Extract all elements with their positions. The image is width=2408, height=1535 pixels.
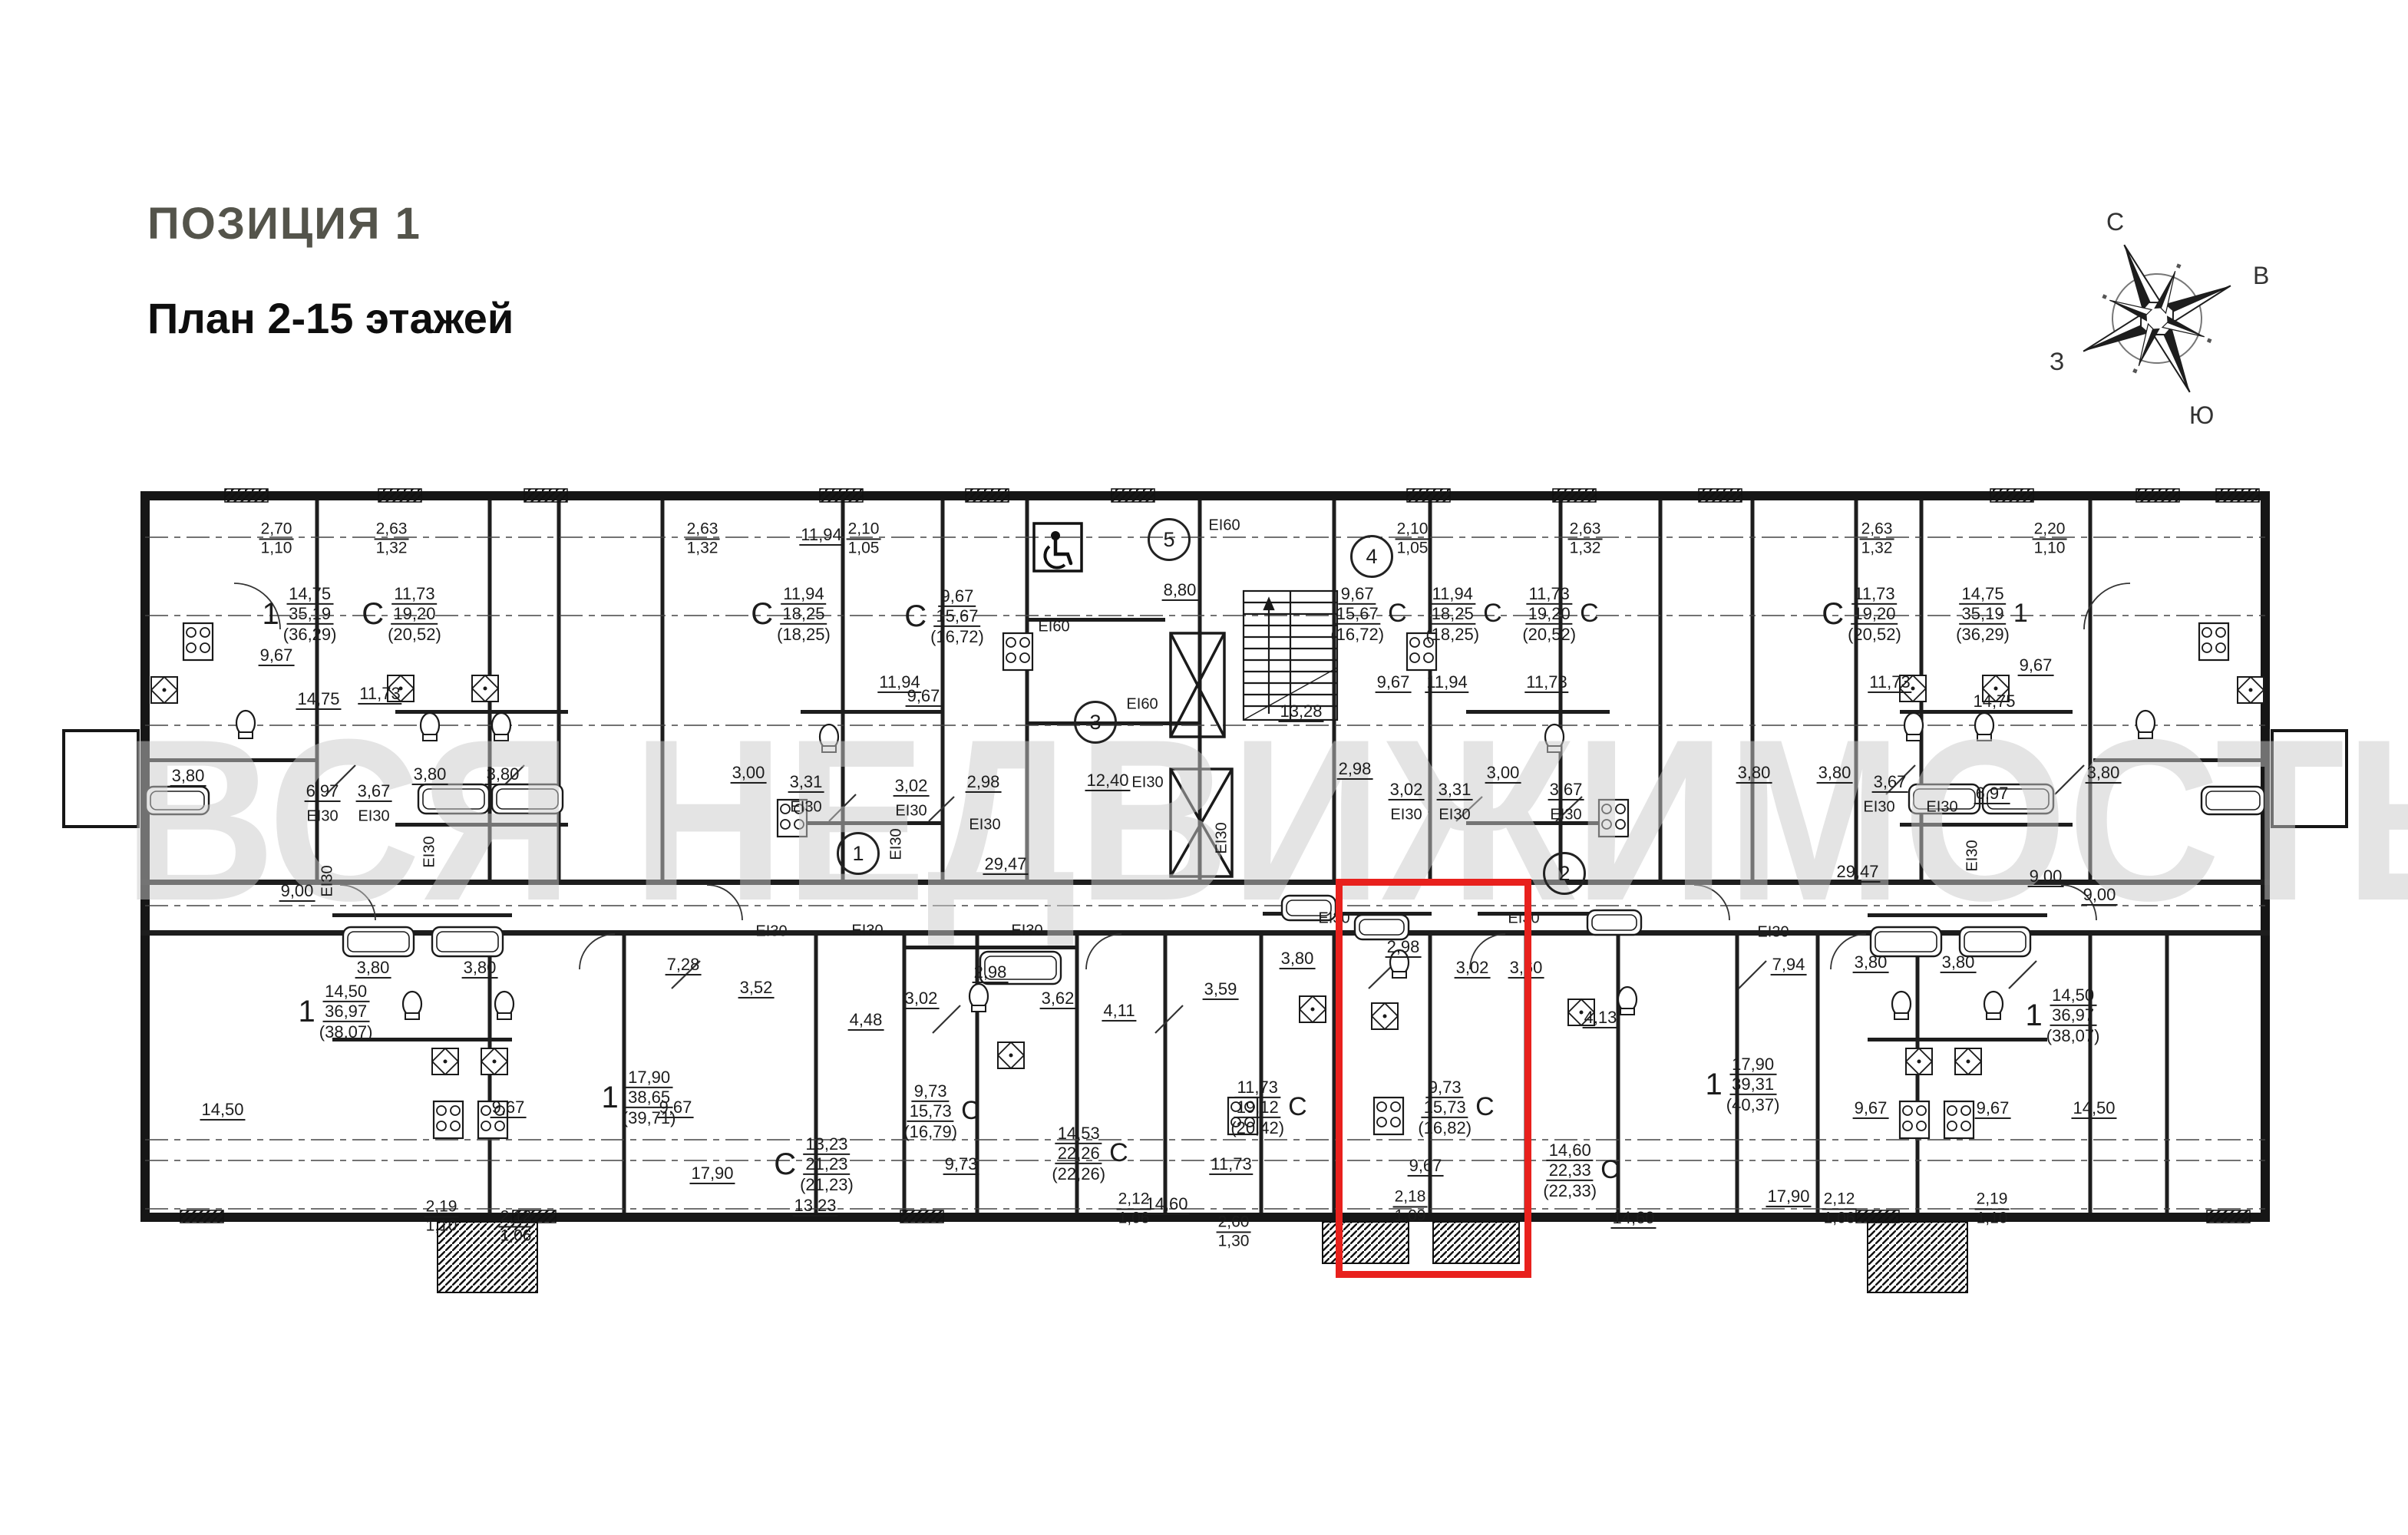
dimension-label: 29,47 bbox=[983, 855, 1028, 875]
compass-south-label: Ю bbox=[2189, 401, 2214, 429]
dimension-label: 3,02 bbox=[894, 777, 930, 797]
dimension-label: 11,94 bbox=[1425, 673, 1468, 693]
dimension-label: 3,00 bbox=[731, 764, 767, 784]
fire-rating-label: EI30 bbox=[1926, 800, 1957, 816]
apartment-area-stack: 14,5322,26(22,26)С bbox=[1052, 1124, 1128, 1183]
dimension-label: 14,50 bbox=[200, 1101, 245, 1121]
dimension-label: 4,13 bbox=[1583, 1008, 1619, 1028]
apartment-area-stack: 117,9038,65(39,71) bbox=[602, 1068, 676, 1127]
fire-rating-label: EI30 bbox=[1965, 840, 1981, 871]
fire-rating-label: EI30 bbox=[1214, 822, 1230, 853]
dimension-label: 3,80 bbox=[2086, 764, 2122, 784]
dimension-pair-label: 2,121,06 bbox=[1822, 1190, 1857, 1226]
dimension-label: 11,73 bbox=[1868, 673, 1911, 693]
fire-rating-label: EI30 bbox=[969, 817, 1000, 834]
dimension-label: 3,80 bbox=[412, 765, 448, 785]
dimension-label: 9,67 bbox=[1376, 673, 1412, 693]
apartment-area-stack: 9,7315,73(16,79)С bbox=[903, 1082, 979, 1141]
apartment-area-stack: 11,7319,12(20,42)С bbox=[1230, 1078, 1306, 1137]
dimension-label: 3,02 bbox=[903, 989, 940, 1009]
dimension-label: 14,60 bbox=[1610, 1209, 1656, 1229]
dimension-label: 9,00 bbox=[2028, 867, 2064, 887]
fire-rating-label: EI60 bbox=[1208, 518, 1240, 534]
fire-rating-label: EI30 bbox=[1757, 925, 1789, 941]
dimension-label: 14,60 bbox=[1144, 1195, 1189, 1215]
dimension-label: 9,67 bbox=[1853, 1099, 1889, 1119]
dimension-label: 3,67 bbox=[1872, 773, 1908, 793]
dimension-label: 3,59 bbox=[1203, 980, 1239, 1000]
dimension-label: 3,80 bbox=[170, 767, 206, 787]
dimension-label: 13,28 bbox=[1278, 702, 1323, 722]
fire-rating-label: EI30 bbox=[1863, 800, 1894, 816]
fire-rating-label: EI30 bbox=[320, 865, 336, 896]
dimension-label: 3,31 bbox=[788, 773, 824, 793]
dimension-label: 3,80 bbox=[485, 765, 521, 785]
dimension-label: 9,67 bbox=[2018, 656, 2054, 676]
dimension-label: 7,94 bbox=[1771, 956, 1807, 975]
dimension-pair-label: 2,631,32 bbox=[1568, 520, 1603, 556]
dimension-label: 11,73 bbox=[1524, 673, 1568, 693]
dimension-label: 2,98 bbox=[1337, 760, 1373, 780]
fire-rating-label: EI30 bbox=[1390, 807, 1422, 824]
dimension-label: 6,97 bbox=[1974, 784, 2010, 804]
compass-east-label: В bbox=[2253, 262, 2269, 289]
apartment-area-stack: 11,9418,25(18,25)С bbox=[1425, 585, 1501, 643]
dimension-label: 13,23 bbox=[792, 1197, 837, 1216]
fire-rating-label: EI30 bbox=[358, 809, 389, 825]
dimension-label: 3,67 bbox=[1548, 781, 1584, 801]
fire-rating-label: EI30 bbox=[422, 836, 438, 867]
dimension-label: 14,50 bbox=[2071, 1099, 2116, 1119]
apartment-area-stack: 117,9039,31(40,37) bbox=[1706, 1055, 1780, 1114]
dimension-label: 3,02 bbox=[1389, 781, 1425, 801]
dimension-label: 7,28 bbox=[666, 956, 702, 975]
dimension-pair-label: 2,601,30 bbox=[1217, 1213, 1251, 1249]
dimension-label: 4,48 bbox=[848, 1011, 884, 1031]
fire-rating-label: EI30 bbox=[889, 828, 905, 860]
apartment-area-stack: 9,6715,67(16,72)С bbox=[1330, 585, 1406, 643]
dimension-label: 9,67 bbox=[259, 646, 295, 666]
dimension-label: 11,73 bbox=[358, 685, 401, 705]
fire-rating-label: EI30 bbox=[755, 924, 787, 940]
room-circle-number: 2 bbox=[1543, 852, 1586, 895]
plan-labels: 2,701,102,631,322,631,3211,942,101,052,1… bbox=[134, 491, 2276, 1305]
dimension-label: 3,80 bbox=[1280, 949, 1316, 969]
page: ПОЗИЦИЯ 1 План 2-15 этажей С В З Ю bbox=[0, 0, 2408, 1535]
dimension-label: 14,75 bbox=[1971, 692, 2017, 712]
dimension-label: 9,67 bbox=[906, 687, 942, 707]
floor-plan: ВСЯ НЕДВИЖИМОСТЬ 2,701,102,631,322,631,3… bbox=[134, 491, 2276, 1305]
dimension-label: 3,80 bbox=[355, 959, 391, 979]
room-circle-number: 1 bbox=[837, 832, 880, 875]
apartment-area-stack: С11,7319,20(20,52) bbox=[362, 585, 441, 643]
dimension-pair-label: 2,101,05 bbox=[847, 520, 881, 556]
dimension-pair-label: 2,631,32 bbox=[1860, 520, 1894, 556]
dimension-label: 3,52 bbox=[738, 979, 775, 999]
dimension-label: 12,40 bbox=[1085, 771, 1130, 791]
dimension-pair-label: 2,101,05 bbox=[1396, 520, 1430, 556]
fire-rating-label: EI30 bbox=[1011, 923, 1042, 939]
dimension-label: 14,75 bbox=[296, 690, 341, 710]
dimension-label: 17,90 bbox=[689, 1164, 735, 1184]
dimension-label: 8,80 bbox=[1162, 581, 1198, 601]
apartment-area-stack: С13,2321,23(21,23) bbox=[774, 1135, 854, 1193]
dimension-pair-label: 2,191,10 bbox=[1975, 1190, 2010, 1226]
compass-star bbox=[2050, 212, 2263, 424]
apartment-area-stack: 114,5036,97(38,07) bbox=[299, 982, 373, 1041]
apartment-area-stack: 114,7535,19(36,29) bbox=[263, 585, 337, 643]
dimension-pair-label: 2,631,32 bbox=[685, 520, 720, 556]
dimension-label: 9,67 bbox=[1975, 1099, 2011, 1119]
dimension-label: 3,80 bbox=[1736, 764, 1772, 784]
dimension-label: 3,80 bbox=[462, 959, 498, 979]
apartment-area-stack: 11,7319,20(20,52)С bbox=[1522, 585, 1598, 643]
dimension-label: 3,31 bbox=[1437, 781, 1473, 801]
highlight-box bbox=[1336, 879, 1531, 1278]
fire-rating-label: EI30 bbox=[1131, 775, 1163, 791]
apartment-area-stack: 14,6022,33(22,33)С bbox=[1543, 1141, 1619, 1200]
apartment-area-stack: 114,5036,97(38,07) bbox=[2026, 986, 2100, 1045]
apartment-area-stack: 14,7535,19(36,29)1 bbox=[1956, 585, 2028, 643]
dimension-label: 9,73 bbox=[943, 1155, 979, 1175]
dimension-pair-label: 2,121,06 bbox=[499, 1208, 533, 1244]
dimension-label: 9,00 bbox=[279, 882, 315, 902]
dimension-label: 3,00 bbox=[1485, 764, 1521, 784]
room-circle-number: 5 bbox=[1148, 518, 1191, 561]
room-circle-number: 4 bbox=[1350, 535, 1393, 578]
dimension-pair-label: 2,701,10 bbox=[259, 520, 294, 556]
dimension-label: 3,67 bbox=[356, 782, 392, 802]
apartment-area-stack: С11,9418,25(18,25) bbox=[751, 585, 831, 643]
dimension-label: 3,62 bbox=[1040, 989, 1076, 1009]
dimension-label: 6,97 bbox=[305, 782, 341, 802]
apartment-area-stack: С9,6715,67(16,72) bbox=[904, 587, 984, 645]
fire-rating-label: EI30 bbox=[306, 809, 338, 825]
dimension-label: 3,80 bbox=[1853, 953, 1889, 973]
dimension-label: 11,94 bbox=[799, 526, 843, 546]
fire-rating-label: EI30 bbox=[851, 923, 883, 939]
fire-rating-label: EI30 bbox=[790, 800, 821, 816]
page-subtitle: План 2-15 этажей bbox=[147, 293, 514, 343]
fire-rating-label: EI30 bbox=[1550, 807, 1581, 824]
dimension-label: 17,90 bbox=[1766, 1187, 1811, 1207]
compass-rose: С В З Ю bbox=[2026, 184, 2287, 460]
dimension-label: 11,73 bbox=[1209, 1155, 1253, 1175]
dimension-label: 2,98 bbox=[966, 773, 1002, 793]
dimension-pair-label: 2,201,10 bbox=[2033, 520, 2067, 556]
dimension-label: 2,98 bbox=[973, 963, 1009, 983]
dimension-label: 9,67 bbox=[491, 1098, 527, 1118]
page-title: ПОЗИЦИЯ 1 bbox=[147, 198, 421, 249]
dimension-label: 3,80 bbox=[1941, 953, 1977, 973]
room-circle-number: 3 bbox=[1074, 701, 1117, 744]
fire-rating-label: EI60 bbox=[1038, 619, 1069, 635]
dimension-pair-label: 2,631,32 bbox=[375, 520, 409, 556]
compass-north-label: С bbox=[2106, 208, 2124, 236]
dimension-label: 3,80 bbox=[1817, 764, 1853, 784]
apartment-area-stack: С11,7319,20(20,52) bbox=[1822, 585, 1901, 643]
fire-rating-label: EI30 bbox=[895, 804, 927, 820]
dimension-label: 4,11 bbox=[1102, 1002, 1136, 1022]
dimension-label: 29,47 bbox=[1835, 863, 1880, 883]
dimension-label: 9,00 bbox=[2082, 886, 2118, 906]
dimension-pair-label: 2,191,10 bbox=[424, 1198, 459, 1234]
fire-rating-label: EI60 bbox=[1126, 697, 1158, 713]
fire-rating-label: EI30 bbox=[1439, 807, 1470, 824]
compass-west-label: З bbox=[2050, 348, 2064, 375]
